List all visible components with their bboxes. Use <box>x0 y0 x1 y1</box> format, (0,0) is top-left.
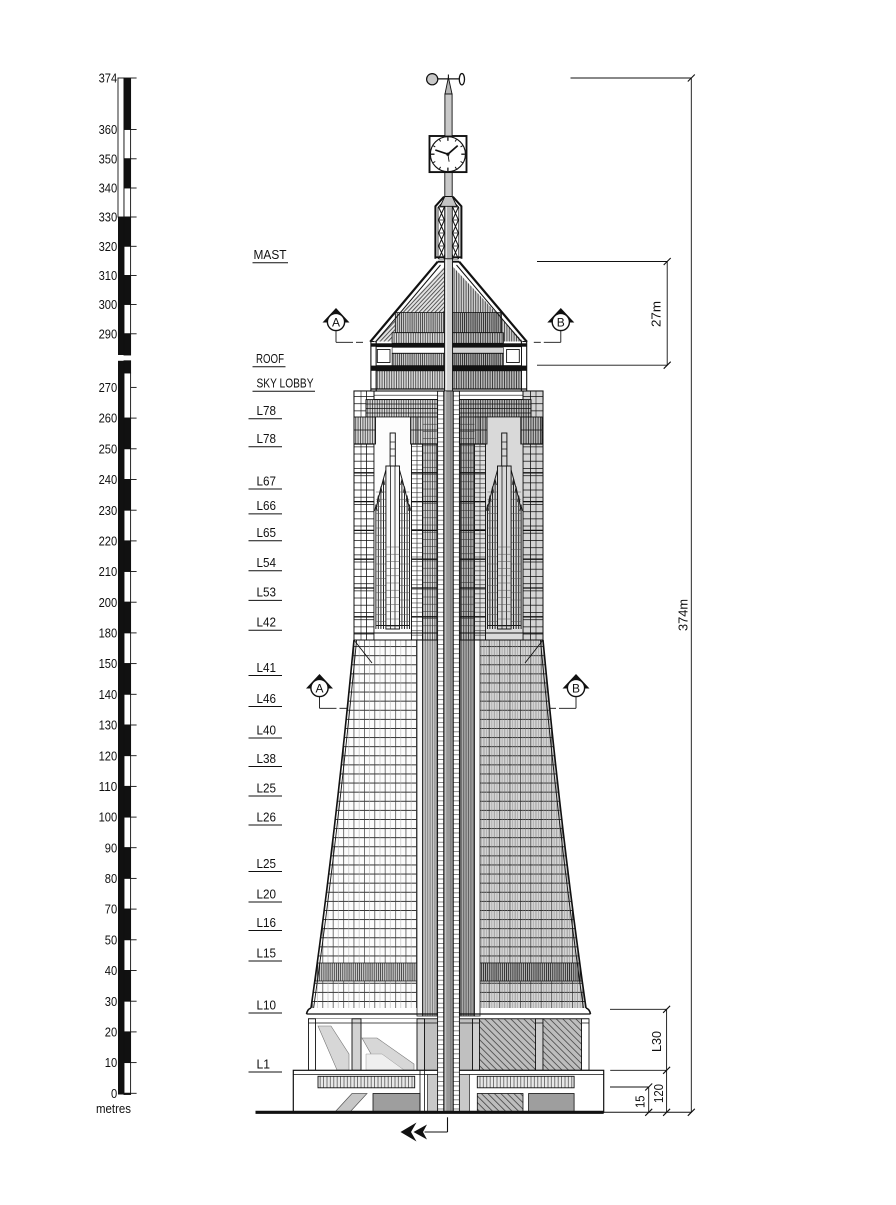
svg-text:30: 30 <box>105 994 117 1009</box>
svg-text:240: 240 <box>99 472 118 487</box>
svg-text:80: 80 <box>105 871 117 886</box>
svg-text:MAST: MAST <box>254 247 287 262</box>
svg-text:L15: L15 <box>257 945 277 960</box>
svg-text:210: 210 <box>99 564 118 579</box>
svg-text:A: A <box>332 315 340 329</box>
svg-text:120: 120 <box>652 1084 666 1103</box>
svg-text:metres: metres <box>96 1102 131 1116</box>
svg-text:180: 180 <box>99 626 118 641</box>
svg-text:L40: L40 <box>257 722 277 737</box>
svg-text:L42: L42 <box>257 615 277 630</box>
svg-text:L20: L20 <box>257 886 277 901</box>
svg-text:250: 250 <box>99 441 118 456</box>
svg-text:27m: 27m <box>649 301 664 327</box>
svg-text:260: 260 <box>99 411 118 426</box>
svg-text:340: 340 <box>99 181 118 196</box>
svg-text:L66: L66 <box>257 498 277 513</box>
svg-text:300: 300 <box>99 297 118 312</box>
svg-text:350: 350 <box>99 151 118 166</box>
svg-text:15: 15 <box>634 1096 648 1109</box>
svg-text:200: 200 <box>99 595 118 610</box>
svg-text:L10: L10 <box>257 997 277 1012</box>
svg-text:330: 330 <box>99 210 118 225</box>
svg-text:L1: L1 <box>257 1056 271 1071</box>
svg-text:130: 130 <box>99 718 118 733</box>
svg-text:L65: L65 <box>257 525 277 540</box>
svg-text:0: 0 <box>111 1086 117 1101</box>
svg-text:L25: L25 <box>257 780 277 795</box>
svg-text:L26: L26 <box>257 809 277 824</box>
svg-text:230: 230 <box>99 503 118 518</box>
svg-text:70: 70 <box>105 902 117 917</box>
svg-text:A: A <box>315 681 323 695</box>
svg-text:B: B <box>572 681 580 695</box>
svg-text:140: 140 <box>99 687 118 702</box>
svg-text:360: 360 <box>99 122 118 137</box>
svg-text:L38: L38 <box>257 751 277 766</box>
svg-text:L54: L54 <box>257 555 277 570</box>
svg-text:L53: L53 <box>257 585 277 600</box>
svg-text:374: 374 <box>99 71 118 86</box>
svg-text:10: 10 <box>105 1055 117 1070</box>
svg-text:50: 50 <box>105 932 117 947</box>
svg-text:270: 270 <box>99 380 118 395</box>
svg-text:40: 40 <box>105 963 117 978</box>
svg-text:150: 150 <box>99 656 118 671</box>
svg-text:110: 110 <box>99 779 118 794</box>
svg-text:120: 120 <box>99 748 118 763</box>
svg-text:B: B <box>557 315 565 329</box>
svg-text:290: 290 <box>99 326 118 341</box>
svg-text:310: 310 <box>99 268 118 283</box>
svg-text:L67: L67 <box>257 473 277 488</box>
svg-text:L46: L46 <box>257 691 277 706</box>
svg-text:374m: 374m <box>675 599 690 631</box>
svg-text:L16: L16 <box>257 915 277 930</box>
svg-text:ROOF: ROOF <box>256 351 284 366</box>
svg-text:220: 220 <box>99 534 118 549</box>
svg-text:100: 100 <box>99 810 118 825</box>
svg-text:L25: L25 <box>257 856 277 871</box>
svg-text:90: 90 <box>105 840 117 855</box>
svg-text:SKY LOBBY: SKY LOBBY <box>257 376 314 391</box>
svg-text:L41: L41 <box>257 660 277 675</box>
svg-text:20: 20 <box>105 1025 117 1040</box>
svg-text:L30: L30 <box>650 1031 664 1052</box>
svg-text:L78: L78 <box>257 403 277 418</box>
svg-text:320: 320 <box>99 239 118 254</box>
svg-text:L78: L78 <box>257 431 277 446</box>
